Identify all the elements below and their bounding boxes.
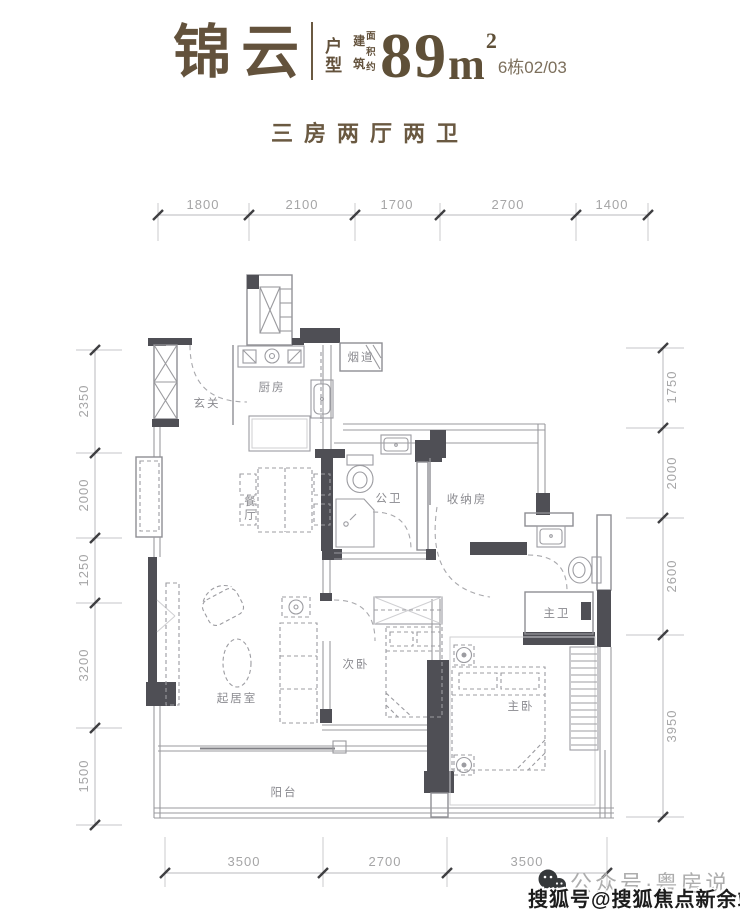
dimension-chain-right: 1750 2000 2600 3950 [626,343,684,822]
dim-left-2: 2000 [76,479,91,512]
label-entry: 玄关 [194,396,221,410]
dim-left-3: 1250 [76,554,91,587]
sohu-watermark: 搜狐号@搜狐焦点新余站 [528,883,740,912]
wardrobe [374,597,442,624]
service-shaft [247,275,292,345]
label-storage: 收纳房 [447,492,488,506]
label-guest-bath: 公卫 [376,492,403,505]
room-labels: 玄关 厨房 烟道 餐厅 公卫 收纳房 主卫 起居室 次卧 主卧 阳台 [194,350,571,799]
label-master-bedroom: 主卧 [508,700,535,713]
dim-top-2: 2100 [286,197,319,212]
project-name: 锦云 [173,24,309,82]
label-living: 起居室 [217,691,258,705]
dimension-chain-top: 1800 2100 1700 2700 1400 [153,197,653,241]
label-dining: 餐厅 [243,494,256,522]
label-second-bedroom: 次卧 [343,657,370,671]
guest-bath-fixtures [336,435,411,547]
dim-right-1: 1750 [664,371,679,404]
dim-right-3: 2600 [664,560,679,593]
dim-right-4: 3950 [664,710,679,743]
downlight-bottom [454,755,474,775]
dim-bottom-2: 2700 [369,854,402,869]
master-bath-fixtures [537,526,601,583]
layout-summary: 三房两厅两卫 [0,116,740,148]
living-room-furniture [140,461,317,723]
unit-type-label: 户型 [325,37,345,76]
master-toilet [569,557,602,583]
dim-top-5: 1400 [596,197,629,212]
header-divider [311,22,313,80]
dim-bottom-1: 3500 [228,854,261,869]
dim-left-1: 2350 [76,385,91,418]
hatched-wardrobe [570,647,598,750]
floorplan-page: 锦云 户型 建筑 面积约 89 m 2 6栋02/03 三房两厅两卫 1800 … [0,0,740,916]
dim-left-4: 3200 [76,649,91,682]
area-unit: m [448,47,485,82]
label-kitchen: 厨房 [259,381,286,394]
area-prefix: 建筑 面积约 [353,30,376,76]
entry-closet [148,338,179,427]
label-flue: 烟道 [348,350,375,364]
master-bed [452,667,545,770]
shower [336,499,374,547]
kitchen-counter [238,346,333,451]
label-master-bath: 主卫 [544,607,571,620]
header: 锦云 户型 建筑 面积约 89 m 2 6栋02/03 [0,22,740,82]
dim-left-5: 1500 [76,760,91,793]
floorplan-drawing: 1800 2100 1700 2700 1400 2350 2000 1250 … [0,195,740,895]
sofa [280,597,317,723]
dim-bottom-3: 3500 [511,854,544,869]
dim-top-4: 2700 [492,197,525,212]
armchair [196,580,246,629]
dim-right-2: 2000 [664,457,679,490]
area-value: 89 [380,30,448,82]
downlight-top [454,645,474,665]
building-units: 6栋02/03 [498,53,567,78]
dimension-chain-left: 2350 2000 1250 3200 1500 [76,345,122,830]
dim-top-1: 1800 [187,197,220,212]
toilet [347,455,373,493]
area-superscript: 2 [486,28,497,54]
dim-top-3: 1700 [381,197,414,212]
label-balcony: 阳台 [271,785,298,799]
area-prefix-col1: 建筑 [353,30,366,76]
area-prefix-col2: 面积约 [366,30,376,76]
